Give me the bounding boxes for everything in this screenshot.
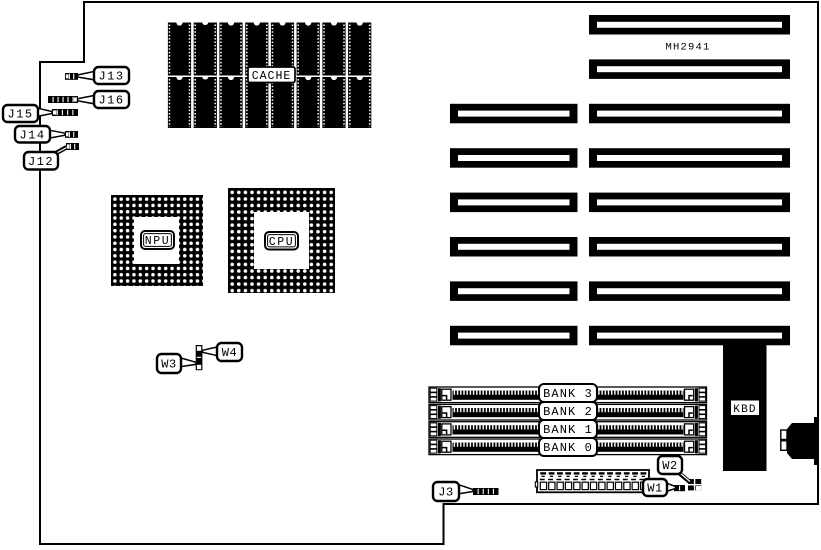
svg-text:J14: J14	[19, 128, 45, 142]
svg-text:W3: W3	[161, 358, 177, 372]
svg-text:W1: W1	[647, 482, 663, 496]
svg-text:MH2941: MH2941	[665, 42, 710, 54]
svg-text:J12: J12	[28, 155, 54, 169]
svg-text:W4: W4	[222, 346, 238, 360]
svg-text:BANK 1: BANK 1	[543, 423, 593, 437]
svg-text:J13: J13	[98, 70, 124, 84]
svg-text:W2: W2	[662, 459, 678, 473]
svg-text:CPU: CPU	[269, 236, 295, 249]
svg-text:BANK 3: BANK 3	[543, 387, 593, 401]
svg-text:NPU: NPU	[145, 235, 171, 248]
svg-text:BANK 2: BANK 2	[543, 405, 593, 419]
svg-text:J15: J15	[7, 108, 33, 122]
svg-text:J3: J3	[438, 486, 454, 500]
svg-text:J16: J16	[98, 94, 124, 108]
svg-text:BANK 0: BANK 0	[543, 441, 593, 455]
svg-text:KBD: KBD	[733, 404, 756, 416]
svg-text:CACHE: CACHE	[252, 70, 292, 83]
